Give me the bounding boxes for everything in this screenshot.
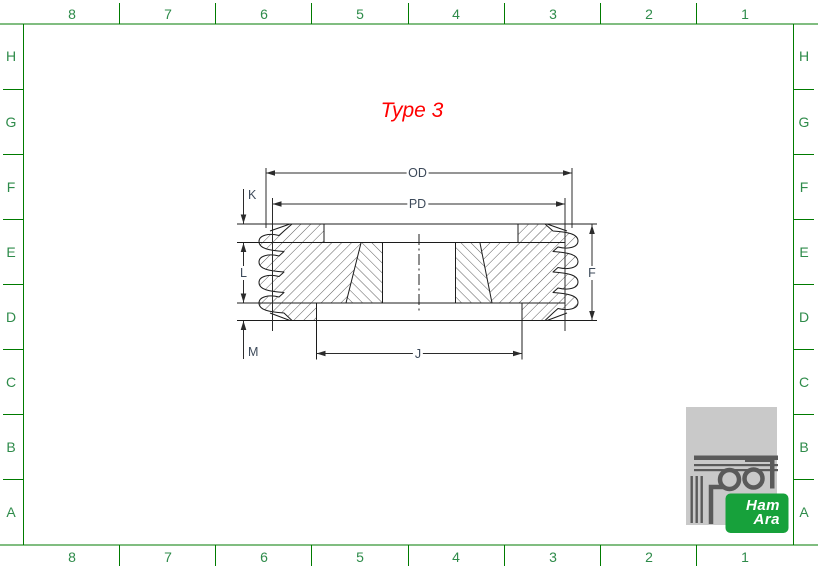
dim-label-k: K — [246, 188, 258, 202]
grid-label-left-e: E — [2, 244, 20, 260]
grid-label-bottom-8: 8 — [62, 549, 82, 565]
row-ticks-right — [794, 90, 815, 480]
grid-label-bottom-3: 3 — [543, 549, 563, 565]
arrow-k-down — [241, 215, 247, 224]
arrow-pd-right — [556, 201, 565, 207]
grid-label-top-1: 1 — [735, 6, 755, 22]
arrow-f-down — [589, 311, 595, 320]
grid-label-right-a: A — [795, 504, 813, 520]
grid-label-top-6: 6 — [254, 6, 274, 22]
arrow-j-right — [513, 351, 522, 357]
grid-label-top-8: 8 — [62, 6, 82, 22]
dim-label-od: OD — [406, 166, 429, 180]
grid-label-left-d: D — [2, 309, 20, 325]
grid-label-bottom-4: 4 — [446, 549, 466, 565]
grid-label-top-5: 5 — [350, 6, 370, 22]
arrow-f-up — [589, 225, 595, 234]
grid-label-top-2: 2 — [639, 6, 659, 22]
dim-label-f: F — [586, 266, 598, 280]
sheet-graphics — [0, 0, 820, 573]
grid-label-top-3: 3 — [543, 6, 563, 22]
bottom-flange-face — [317, 304, 522, 321]
column-ticks-bottom — [120, 545, 697, 566]
arrow-m-up — [241, 321, 247, 330]
grid-label-left-h: H — [2, 48, 20, 64]
grid-label-bottom-2: 2 — [639, 549, 659, 565]
arrow-pd-left — [273, 201, 282, 207]
grid-label-bottom-6: 6 — [254, 549, 274, 565]
arrow-l-down — [241, 294, 247, 303]
arrow-l-up — [241, 243, 247, 252]
grid-label-top-4: 4 — [446, 6, 466, 22]
logo-text-ara: Ara — [726, 513, 780, 527]
grid-label-bottom-5: 5 — [350, 549, 370, 565]
arrow-j-left — [317, 351, 326, 357]
grid-label-left-f: F — [2, 179, 20, 195]
row-ticks-left — [3, 90, 24, 480]
grid-label-top-7: 7 — [158, 6, 178, 22]
arrow-od-right — [563, 170, 572, 176]
part-section-view — [237, 224, 597, 360]
grid-label-right-f: F — [795, 179, 813, 195]
dim-label-pd: PD — [407, 197, 428, 211]
grid-label-left-a: A — [2, 504, 20, 520]
grid-label-left-b: B — [2, 439, 20, 455]
dim-label-l: L — [238, 266, 249, 280]
grid-label-right-d: D — [795, 309, 813, 325]
dim-label-m: M — [246, 345, 260, 359]
grid-label-right-c: C — [795, 374, 813, 390]
arrow-od-left — [266, 170, 275, 176]
grid-label-right-h: H — [795, 48, 813, 64]
grid-label-right-g: G — [795, 114, 813, 130]
grid-label-bottom-1: 1 — [735, 549, 755, 565]
grid-label-right-e: E — [795, 244, 813, 260]
column-ticks-top — [120, 3, 697, 24]
grid-label-left-c: C — [2, 374, 20, 390]
grid-label-right-b: B — [795, 439, 813, 455]
grid-label-bottom-7: 7 — [158, 549, 178, 565]
dim-label-j: J — [413, 347, 423, 361]
drawing-sheet: 8 7 6 5 4 3 2 1 8 7 6 5 4 3 2 1 H G F E … — [0, 0, 820, 573]
top-flange-face — [325, 225, 518, 243]
type-title: Type 3 — [381, 99, 444, 123]
grid-label-left-g: G — [2, 114, 20, 130]
